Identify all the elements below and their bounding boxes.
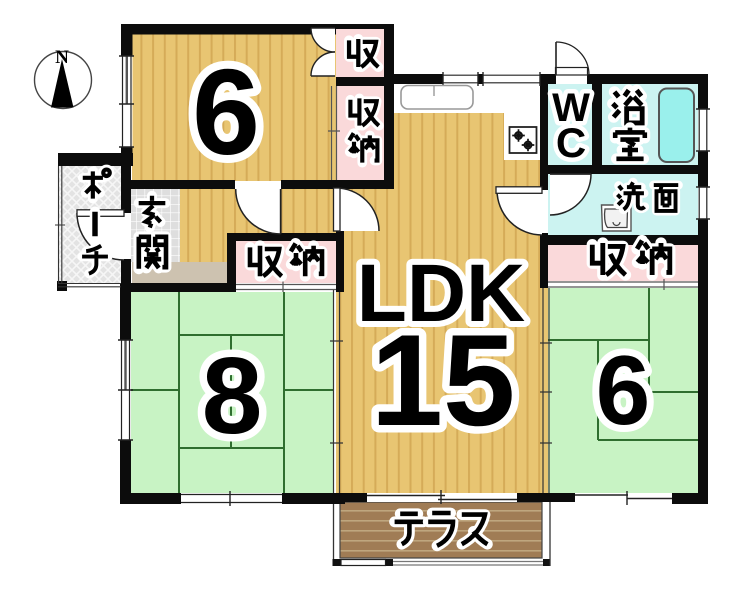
svg-text:C: C bbox=[556, 119, 586, 166]
svg-text:N: N bbox=[55, 47, 69, 68]
svg-text:6: 6 bbox=[192, 44, 260, 180]
svg-text:6: 6 bbox=[596, 335, 651, 445]
svg-text:15: 15 bbox=[371, 307, 516, 453]
svg-text:8: 8 bbox=[202, 335, 263, 457]
